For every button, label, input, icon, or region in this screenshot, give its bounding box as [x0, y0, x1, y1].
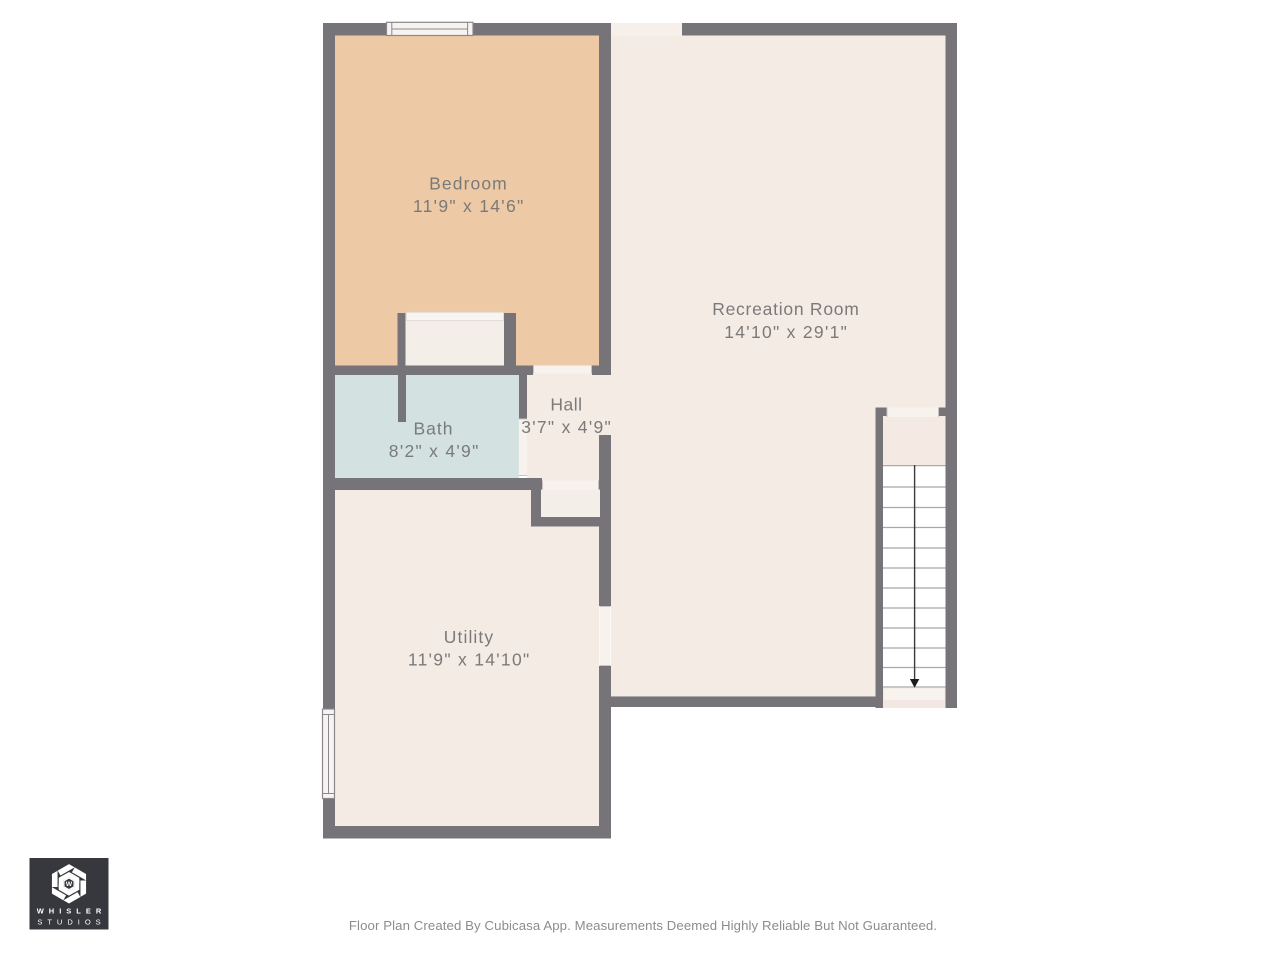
svg-text:STUDIOS: STUDIOS [37, 918, 105, 927]
svg-text:8'2" x 4'9": 8'2" x 4'9" [389, 441, 480, 461]
svg-text:Recreation Room: Recreation Room [712, 299, 859, 319]
svg-text:Bath: Bath [414, 419, 454, 439]
svg-text:Hall: Hall [550, 395, 582, 415]
svg-text:Utility: Utility [444, 627, 494, 647]
svg-text:3'7" x 4'9": 3'7" x 4'9" [521, 417, 612, 437]
svg-text:Bedroom: Bedroom [429, 173, 508, 193]
svg-text:11'9" x 14'6": 11'9" x 14'6" [413, 196, 525, 216]
svg-text:11'9" x 14'10": 11'9" x 14'10" [408, 649, 531, 669]
svg-text:14'10" x 29'1": 14'10" x 29'1" [724, 322, 848, 342]
svg-text:W: W [66, 881, 73, 888]
svg-text:WHISLER: WHISLER [37, 907, 107, 916]
svg-text:Floor Plan Created By Cubicasa: Floor Plan Created By Cubicasa App. Meas… [349, 918, 937, 933]
